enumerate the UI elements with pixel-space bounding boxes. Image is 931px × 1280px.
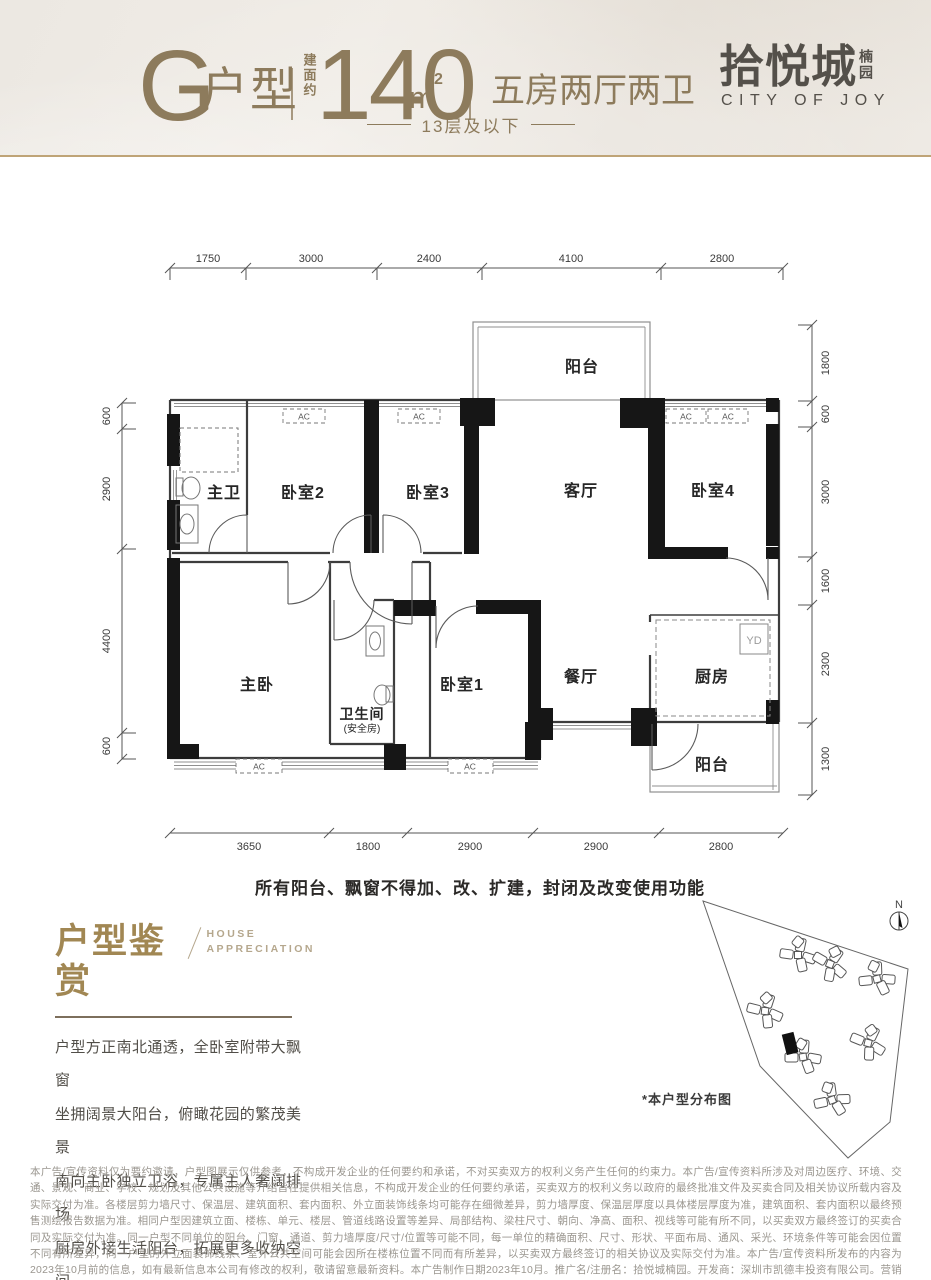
section-title: 户型鉴赏 [55,922,184,1003]
svg-text:AC: AC [680,412,692,422]
brand-logo-cn: 拾悦城 [719,44,857,89]
area-unit: m [409,82,435,113]
room-living: 客厅 [564,481,598,500]
svg-text:2400: 2400 [417,253,441,265]
svg-text:AC: AC [464,762,476,772]
feature-line: 户型方正南北通透，全卧室附带大飘窗 [55,1031,315,1098]
svg-text:1300: 1300 [820,747,832,771]
svg-text:2800: 2800 [710,253,734,265]
room-dining: 餐厅 [563,667,598,686]
brand-logo-en: CITY OF JOY [721,93,891,109]
floors-range: 13层及以下 [348,112,594,137]
svg-text:YD: YD [746,635,761,647]
svg-text:600: 600 [101,407,113,425]
svg-text:1800: 1800 [820,351,832,375]
svg-text:AC: AC [722,412,734,422]
header-divider [291,68,293,120]
svg-text:3000: 3000 [820,480,832,504]
svg-text:AC: AC [298,412,310,422]
room-master: 主卧 [240,675,274,694]
svg-text:AC: AC [253,762,265,772]
highlighted-unit-marker [782,1032,799,1055]
svg-text:2900: 2900 [458,841,482,853]
site-map: N *本户型分布图 [625,888,920,1163]
header-banner: G 户型 建面约 140 m 2 五房两厅两卫 13层及以下 拾悦城 楠园 CI… [0,0,931,157]
compass-north: N [890,899,908,930]
brochure-page: G 户型 建面约 140 m 2 五房两厅两卫 13层及以下 拾悦城 楠园 CI… [0,0,931,1280]
dash-left [367,124,411,125]
svg-text:2800: 2800 [709,841,733,853]
svg-text:3000: 3000 [299,253,323,265]
room-master-bath: 主卫 [207,483,241,502]
floor-plan: 1750 3000 2400 4100 2800 3650 1800 2900 … [80,244,860,904]
dash-right [531,124,575,125]
svg-text:4400: 4400 [101,629,113,653]
room-bedroom3: 卧室3 [406,483,450,502]
area-prefix: 建面约 [301,53,317,98]
bath-fixtures [176,428,393,705]
buildings [745,935,900,1122]
svg-text:2900: 2900 [101,477,113,501]
svg-text:600: 600 [101,737,113,755]
black-walls [167,398,779,770]
room-bedroom4: 卧室4 [691,481,735,500]
room-bedroom1: 卧室1 [440,675,484,694]
svg-text:1800: 1800 [356,841,380,853]
ac-boxes [236,409,748,773]
gold-rule [55,1016,292,1018]
room-bedroom2: 卧室2 [281,483,325,502]
area-unit-sup: 2 [434,72,443,88]
svg-text:600: 600 [820,405,832,423]
floors-label: 13层及以下 [422,112,521,137]
room-balcony-bottom: 阳台 [695,755,729,774]
room-balcony-top: 阳台 [565,357,599,376]
rooms-summary: 五房两厅两卫 [491,74,695,108]
svg-text:3650: 3650 [237,841,261,853]
room-bath: 卫生间 [340,706,385,722]
legal-disclaimer: 本广告/宣传资料仅为要约邀请，户型图展示仅供参考，不构成开发企业的任何要约和承诺… [30,1164,902,1280]
svg-text:1600: 1600 [820,569,832,593]
section-subtitle: HOUSE APPRECIATION [206,927,315,957]
svg-text:2300: 2300 [820,652,832,676]
room-kitchen: 厨房 [695,667,729,686]
svg-text:1750: 1750 [196,253,220,265]
room-bath-sub: (安全房) [344,722,381,735]
svg-text:N: N [895,899,903,911]
feature-line: 坐拥阔景大阳台，俯瞰花园的繁茂美景 [55,1098,315,1165]
site-map-caption: *本户型分布图 [642,1092,732,1107]
unit-type-label: 户型 [201,66,299,113]
appreciation-header: 户型鉴赏 HOUSE APPRECIATION [55,922,315,1003]
svg-text:2900: 2900 [584,841,608,853]
brand-logo-sub: 楠园 [858,49,874,81]
slash-divider [187,927,201,959]
svg-text:4100: 4100 [559,253,583,265]
svg-text:AC: AC [413,412,425,422]
